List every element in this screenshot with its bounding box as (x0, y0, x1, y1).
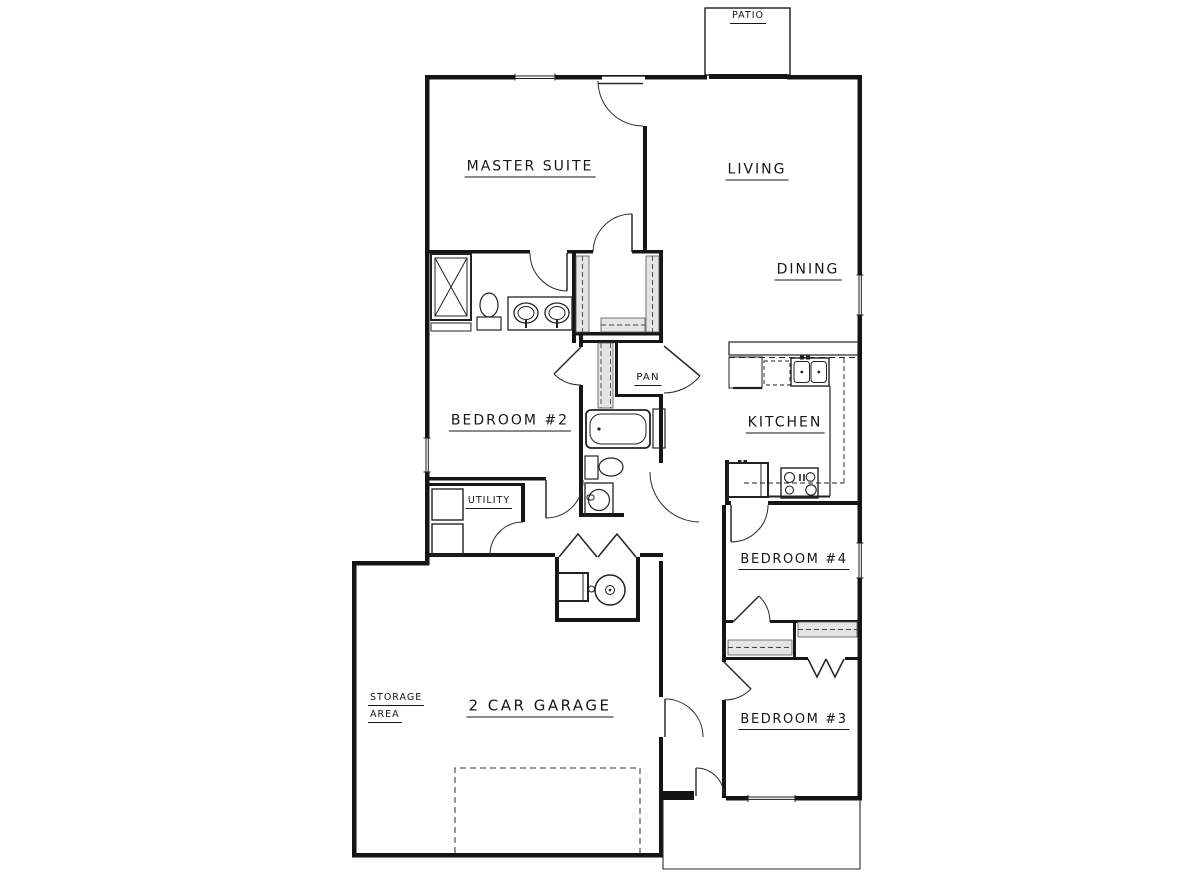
hall-toilet-segment (585, 456, 598, 479)
door-swings-segment (554, 347, 581, 374)
water-heater (595, 575, 625, 605)
furnace (558, 573, 595, 601)
front-porch-outline (663, 800, 860, 869)
door-swings-segment (490, 522, 523, 555)
door-swings-segment (759, 596, 770, 622)
hall-toilet (585, 456, 623, 479)
refrigerator (728, 460, 768, 497)
exterior-walls-segment (858, 75, 863, 275)
washer-segment (432, 489, 463, 520)
shower-segment (431, 323, 471, 331)
interior-walls-segment (722, 700, 726, 796)
interior-walls-segment (726, 620, 733, 623)
washer (432, 489, 463, 520)
interior-walls-segment (615, 394, 663, 397)
exterior-walls-segment (663, 791, 694, 800)
door-swings-segment (554, 374, 581, 385)
dryer-segment (432, 524, 463, 555)
interior-walls-segment (845, 657, 858, 660)
interior-walls-segment (583, 340, 663, 343)
door-swings (490, 81, 844, 796)
interior-walls-segment (429, 477, 546, 481)
breakfast-bar-segment (729, 342, 858, 355)
kitchen-double-sink-segment (817, 371, 820, 374)
floor-plan: PATIO MASTER SUITE LIVING DINING PAN BED… (0, 0, 1200, 896)
door-swings-segment (664, 346, 700, 376)
interior-walls-segment (555, 618, 640, 622)
hall-toilet-segment (599, 458, 623, 476)
interior-walls-segment (615, 343, 618, 397)
interior-walls-segment (725, 501, 731, 505)
patio-sliding-door-segment (709, 74, 787, 79)
label-garage: 2 CAR GARAGE (466, 697, 613, 718)
door-swings-segment (826, 659, 844, 677)
closet-shelving-segment (601, 318, 645, 332)
label-storage-line2: AREA (368, 709, 402, 723)
front-porch-outline-segment (663, 800, 860, 869)
exterior-walls-segment (425, 472, 430, 565)
door-swings-segment (593, 214, 632, 252)
double-vanity (508, 297, 572, 330)
door-swings-segment (808, 659, 826, 677)
kitchen-double-sink-segment (800, 371, 803, 374)
label-patio: PATIO (730, 10, 766, 24)
door-swings-segment (559, 534, 597, 557)
interior-walls-segment (429, 250, 530, 254)
patio-sliding-door (709, 74, 787, 79)
bathtub-segment (597, 427, 600, 430)
range-cooktop-segment (806, 485, 816, 495)
master-toilet-segment (477, 317, 501, 330)
door-swings-segment (598, 534, 636, 557)
floor-plan-linework (0, 0, 1200, 896)
interior-walls (429, 126, 858, 796)
double-vanity-segment (518, 307, 534, 320)
interior-walls-segment (726, 657, 808, 660)
exterior-walls-segment (555, 75, 602, 80)
shower (431, 254, 471, 331)
refrigerator-segment (728, 463, 768, 497)
door-swings-segment (530, 253, 567, 291)
door-swings-segment (724, 689, 751, 700)
exterior-walls-segment (352, 561, 357, 857)
door-swings-segment (731, 505, 768, 542)
label-bedroom3: BEDROOM #3 (738, 712, 849, 730)
label-pantry: PAN (634, 372, 661, 386)
label-master-suite: MASTER SUITE (465, 159, 596, 178)
interior-walls-segment (572, 250, 593, 254)
door-swings-segment (733, 596, 759, 622)
kitchen-counters-segment (729, 357, 762, 388)
interior-walls-segment (632, 250, 663, 254)
label-kitchen: KITCHEN (746, 415, 825, 434)
exterior-walls-segment (659, 737, 663, 857)
master-toilet (477, 293, 501, 330)
exterior-walls-segment (425, 75, 515, 80)
door-swings-segment (650, 472, 699, 522)
interior-walls-segment (572, 332, 663, 336)
interior-walls-segment (579, 335, 583, 347)
double-vanity-segment (549, 307, 565, 320)
interior-walls-segment (722, 505, 726, 662)
door-swings-segment (598, 81, 643, 126)
interior-walls-segment (793, 620, 796, 660)
door-swings-segment (665, 699, 703, 737)
dishwasher-segment (764, 361, 790, 385)
water-heater-segment (609, 589, 612, 592)
range-cooktop-segment (786, 486, 794, 494)
kitchen-double-sink-segment (800, 356, 804, 360)
kitchen-double-sink (791, 356, 829, 387)
dishwasher (764, 361, 790, 385)
label-dining: DINING (775, 262, 842, 281)
refrigerator-segment (738, 460, 742, 464)
master-toilet-segment (480, 293, 498, 317)
garage-door-dashed (455, 768, 640, 853)
door-swings-segment (546, 480, 583, 518)
refrigerator-segment (744, 460, 748, 464)
label-storage-line1: STORAGE (368, 692, 424, 706)
exterior-walls-segment (787, 75, 862, 80)
label-living: LIVING (726, 162, 789, 181)
interior-walls-segment (659, 253, 663, 343)
label-utility: UTILITY (466, 495, 512, 509)
exterior-walls-segment (602, 75, 645, 77)
interior-walls-segment (659, 395, 663, 463)
interior-walls-segment (768, 501, 858, 505)
interior-walls-segment (640, 553, 663, 557)
exterior-walls-segment (858, 578, 863, 800)
label-bedroom2: BEDROOM #2 (449, 413, 571, 432)
exterior-walls-segment (425, 75, 430, 438)
dryer (432, 524, 463, 555)
exterior-walls-segment (659, 561, 663, 697)
interior-walls-segment (636, 557, 640, 622)
closet-shelf-rod-dashes (583, 256, 858, 648)
door-swings-segment (664, 376, 700, 393)
interior-walls-segment (643, 126, 647, 253)
garage-door-dashed-segment (455, 768, 640, 853)
door-swings-segment (724, 662, 751, 689)
range-cooktop-segment (785, 473, 795, 483)
breakfast-bar (729, 342, 858, 358)
closet-shelving (576, 256, 857, 655)
vanity-sink (585, 483, 613, 516)
range-cooktop-segment (806, 473, 815, 482)
interior-walls-segment (429, 483, 521, 486)
exterior-walls-segment (352, 561, 429, 566)
exterior-walls-segment (352, 853, 663, 858)
exterior-walls-segment (726, 796, 748, 801)
door-swings-segment (696, 768, 724, 796)
bathtub (586, 410, 650, 448)
interior-walls-segment (521, 483, 525, 522)
label-bedroom4: BEDROOM #4 (738, 552, 849, 570)
furnace-segment (589, 586, 595, 592)
exterior-walls-segment (795, 796, 862, 801)
exterior-walls-segment (645, 75, 707, 80)
kitchen-double-sink-segment (806, 356, 810, 360)
